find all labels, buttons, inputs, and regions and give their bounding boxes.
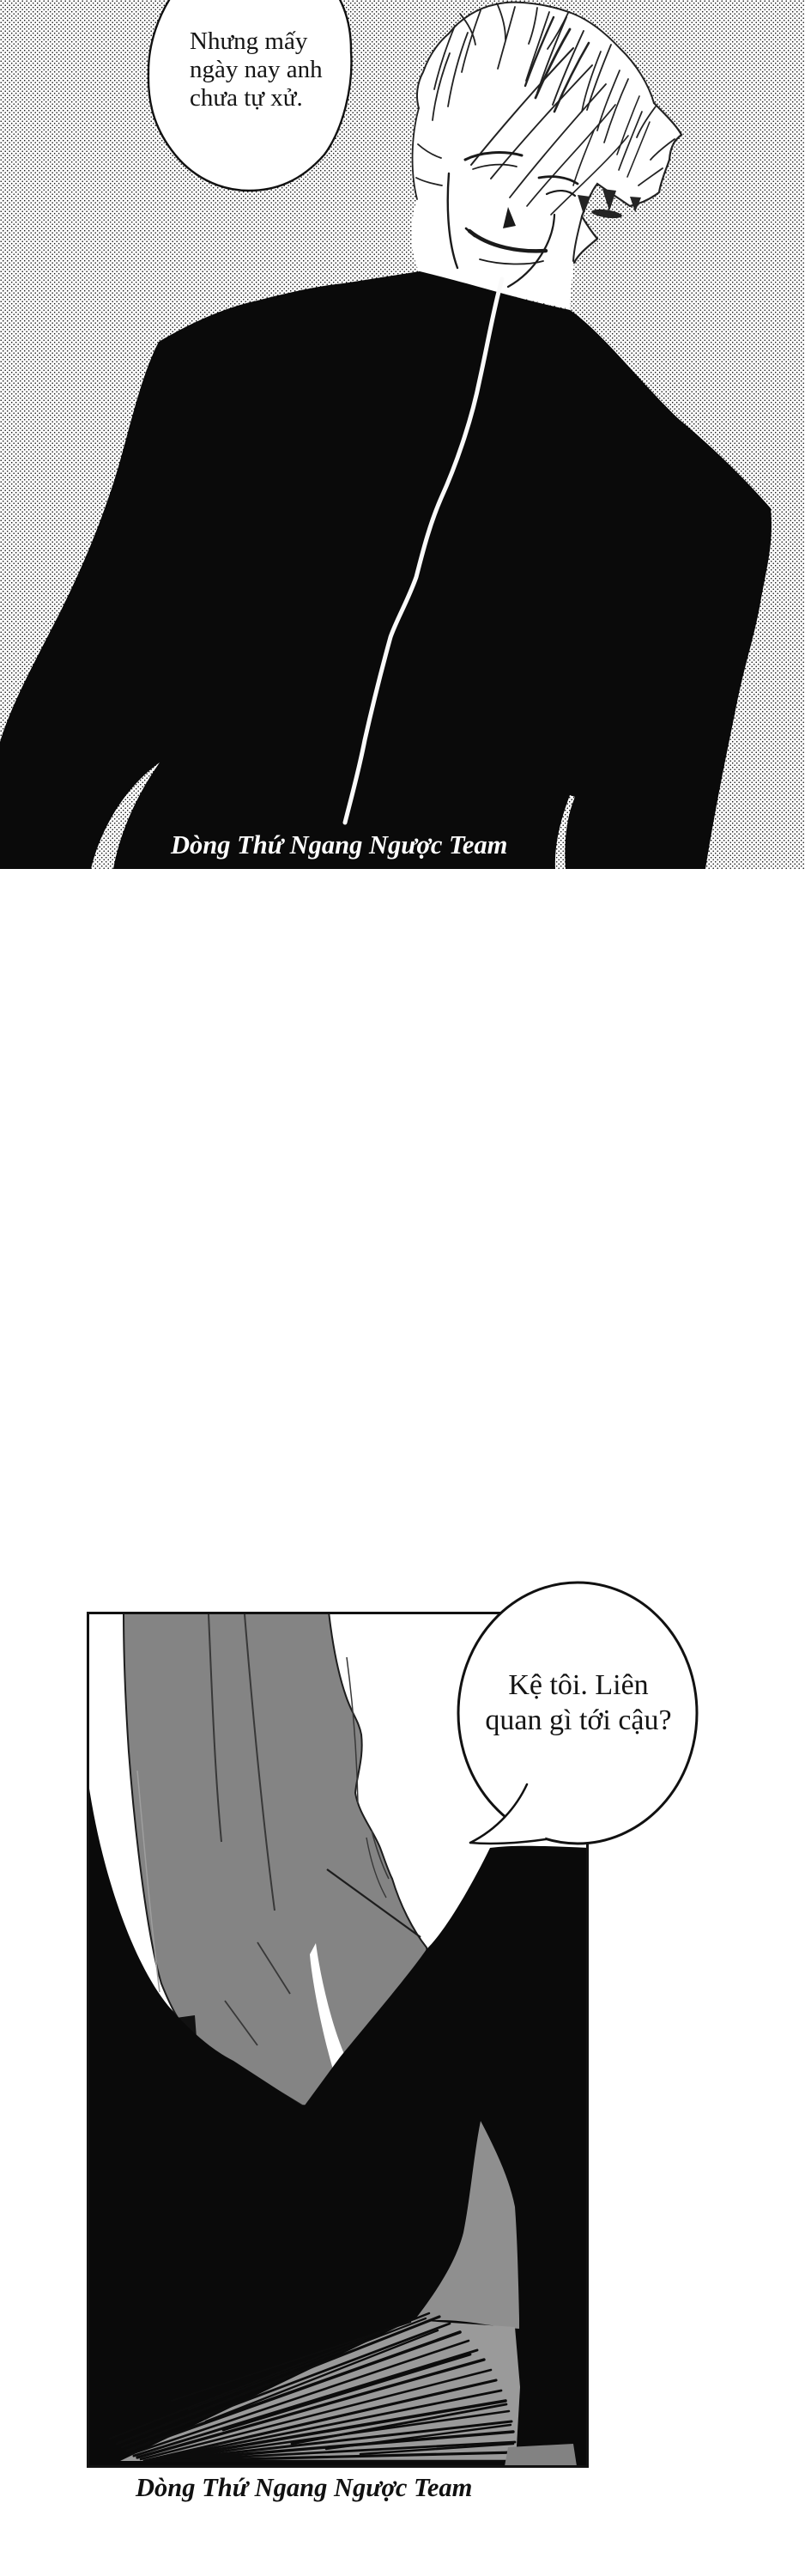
svg-text:Nhưng mấy: Nhưng mấy xyxy=(190,27,308,55)
svg-text:quan gì tới cậu?: quan gì tới cậu? xyxy=(485,1704,671,1736)
svg-text:Dòng Thứ Ngang Ngược Team: Dòng Thứ Ngang Ngược Team xyxy=(170,830,507,860)
svg-text:Kệ tôi. Liên: Kệ tôi. Liên xyxy=(508,1669,648,1701)
svg-text:chưa tự xử.: chưa tự xử. xyxy=(190,84,303,112)
svg-text:ngày nay anh: ngày nay anh xyxy=(190,56,323,83)
svg-text:Dòng Thứ Ngang Ngược Team: Dòng Thứ Ngang Ngược Team xyxy=(135,2473,472,2502)
